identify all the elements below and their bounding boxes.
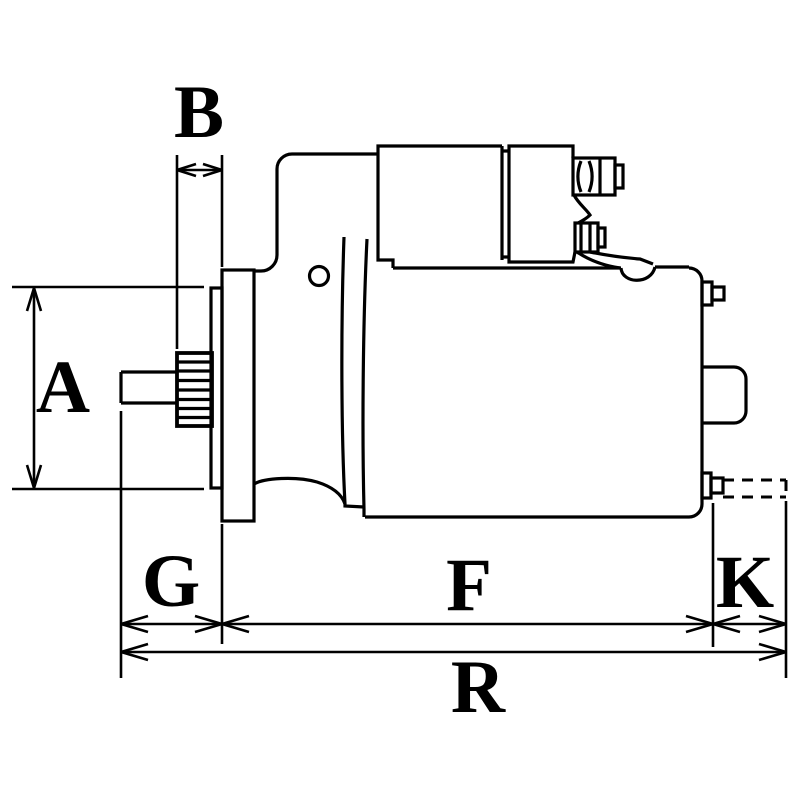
dimension-label-R: R xyxy=(451,646,506,729)
dimension-label-G: G xyxy=(142,540,200,623)
dimension-label-K: K xyxy=(716,541,774,624)
pinion-gear-teeth xyxy=(177,362,212,418)
starter-motor-diagram: A B G F K R xyxy=(0,0,800,800)
dimension-label-B: B xyxy=(174,71,224,154)
technical-drawing-canvas: A B G F K R xyxy=(0,0,800,800)
dimension-label-A: A xyxy=(36,346,90,429)
dimension-label-F: F xyxy=(446,544,492,627)
